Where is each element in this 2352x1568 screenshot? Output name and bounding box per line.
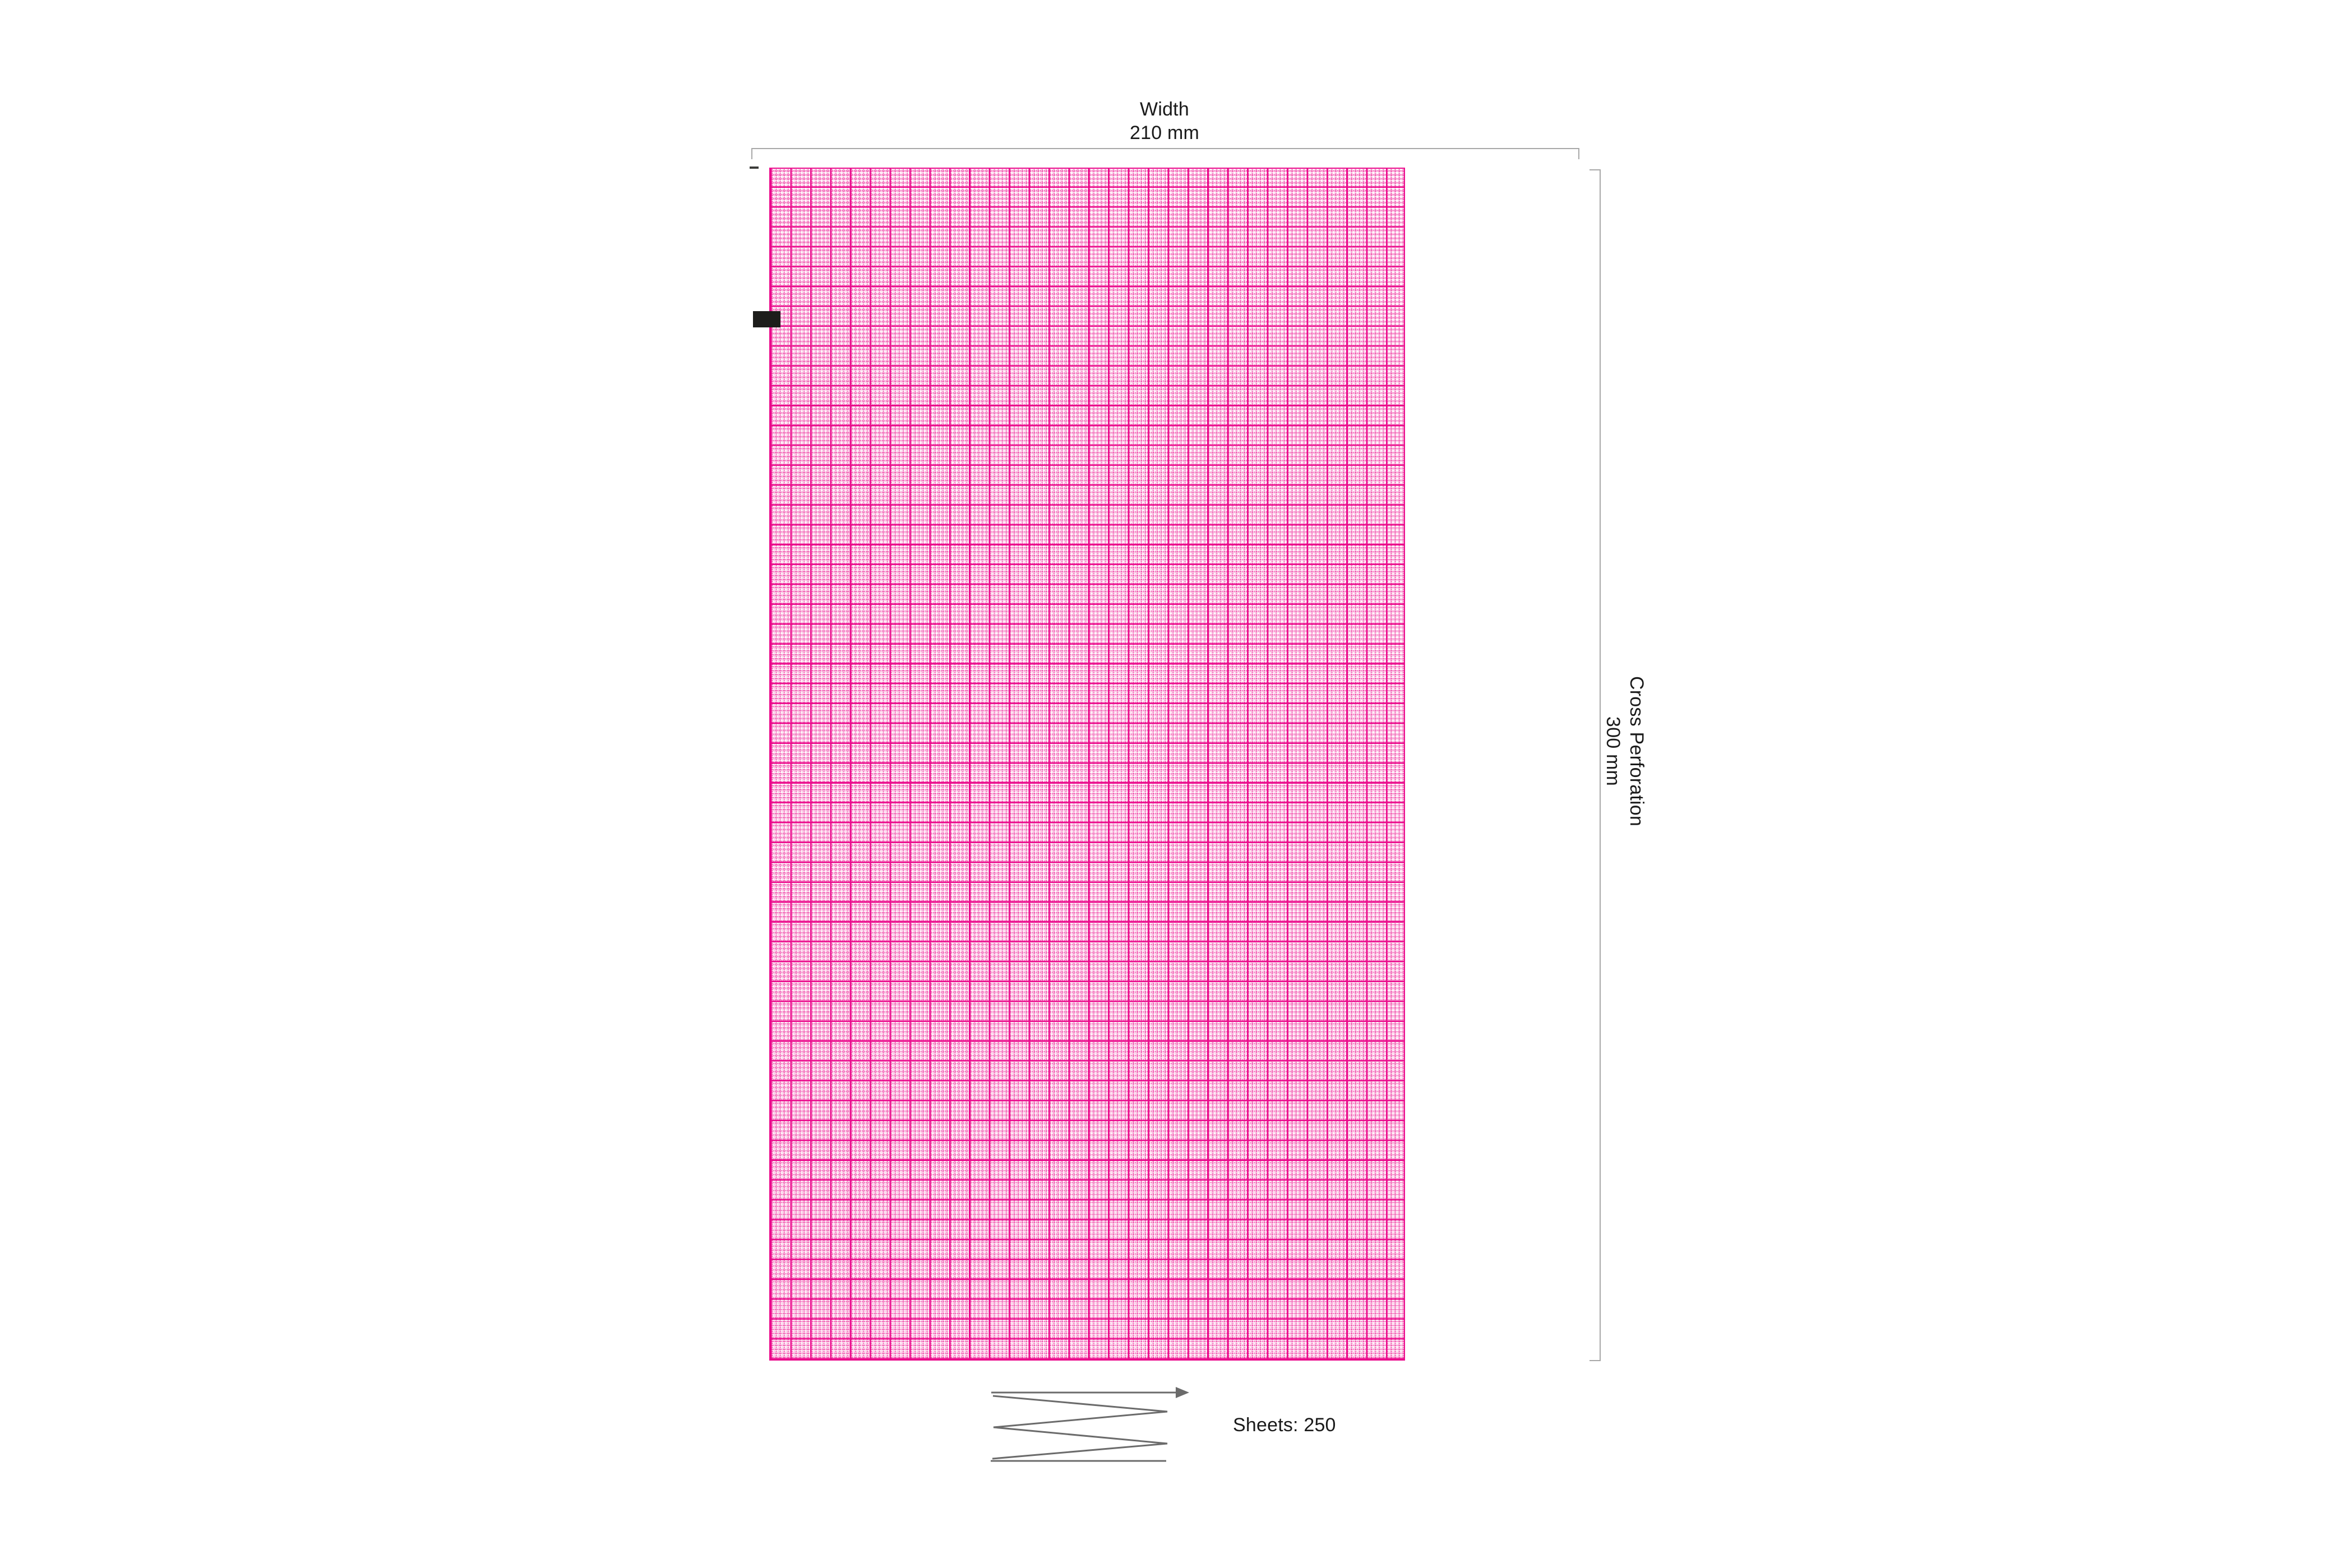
sheets-count-label: Sheets: 250 bbox=[1233, 1413, 1336, 1437]
cross-perforation-title: Cross Perforation bbox=[1625, 676, 1648, 826]
paper-edge-mark bbox=[750, 166, 759, 169]
ecg-paper-spec-diagram: Width 210 mm Cross Perforation 300 mm Sh… bbox=[0, 0, 2352, 1568]
ecg-grid-paper bbox=[769, 168, 1405, 1361]
width-dimension-label: Width 210 mm bbox=[1052, 98, 1277, 145]
width-label-value: 210 mm bbox=[1052, 121, 1277, 145]
width-dimension-line bbox=[751, 148, 1579, 149]
cross-perforation-value: 300 mm bbox=[1601, 676, 1625, 826]
z-fold-arrowhead bbox=[1176, 1387, 1189, 1398]
width-dimension-tick-right bbox=[1578, 148, 1579, 159]
z-fold-icon bbox=[987, 1385, 1194, 1466]
width-dimension-tick-left bbox=[751, 148, 752, 159]
cue-mark bbox=[753, 311, 780, 327]
cross-perforation-label: Cross Perforation 300 mm bbox=[1601, 676, 1648, 826]
cross-perforation-tick-top bbox=[1589, 169, 1601, 170]
width-label-title: Width bbox=[1052, 98, 1277, 121]
cross-perforation-tick-bottom bbox=[1589, 1360, 1601, 1361]
z-fold-zigzag bbox=[992, 1396, 1167, 1459]
